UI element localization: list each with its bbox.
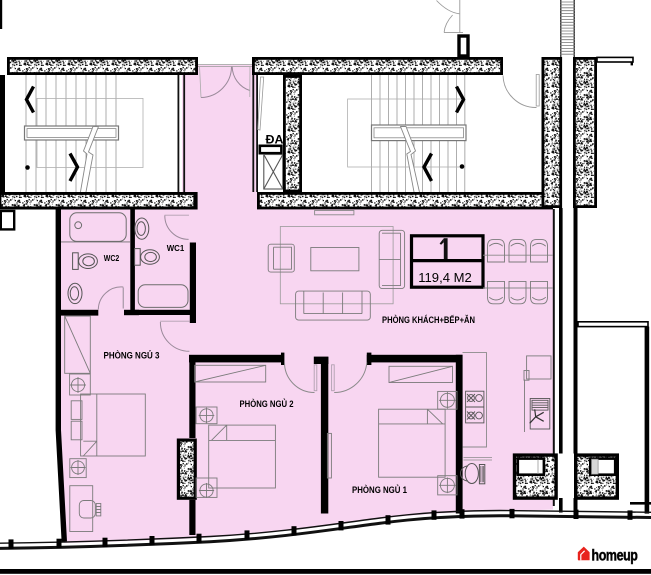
svg-text:PHÒNG NGỦ 3: PHÒNG NGỦ 3 <box>104 350 160 362</box>
svg-text:homeup: homeup <box>592 547 639 564</box>
svg-text:PHÒNG KHÁCH+BẾP+ĂN: PHÒNG KHÁCH+BẾP+ĂN <box>382 314 475 326</box>
svg-text:WC2: WC2 <box>104 253 120 263</box>
svg-text:PHÒNG NGỦ 1: PHÒNG NGỦ 1 <box>352 484 408 496</box>
svg-text:PHÒNG NGỦ 2: PHÒNG NGỦ 2 <box>240 398 294 410</box>
svg-text:119,4 M2: 119,4 M2 <box>418 270 472 285</box>
svg-text:WC1: WC1 <box>167 243 185 253</box>
